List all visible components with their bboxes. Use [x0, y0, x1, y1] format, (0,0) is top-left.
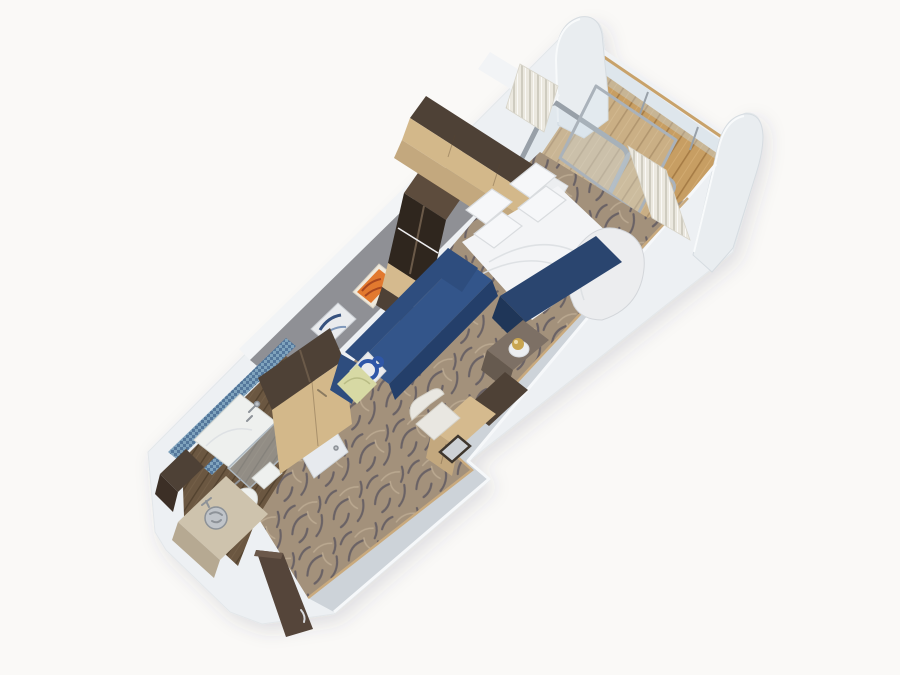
stateroom-svg [0, 0, 900, 675]
sink-bowl [205, 507, 227, 529]
stateroom-render [0, 0, 900, 675]
